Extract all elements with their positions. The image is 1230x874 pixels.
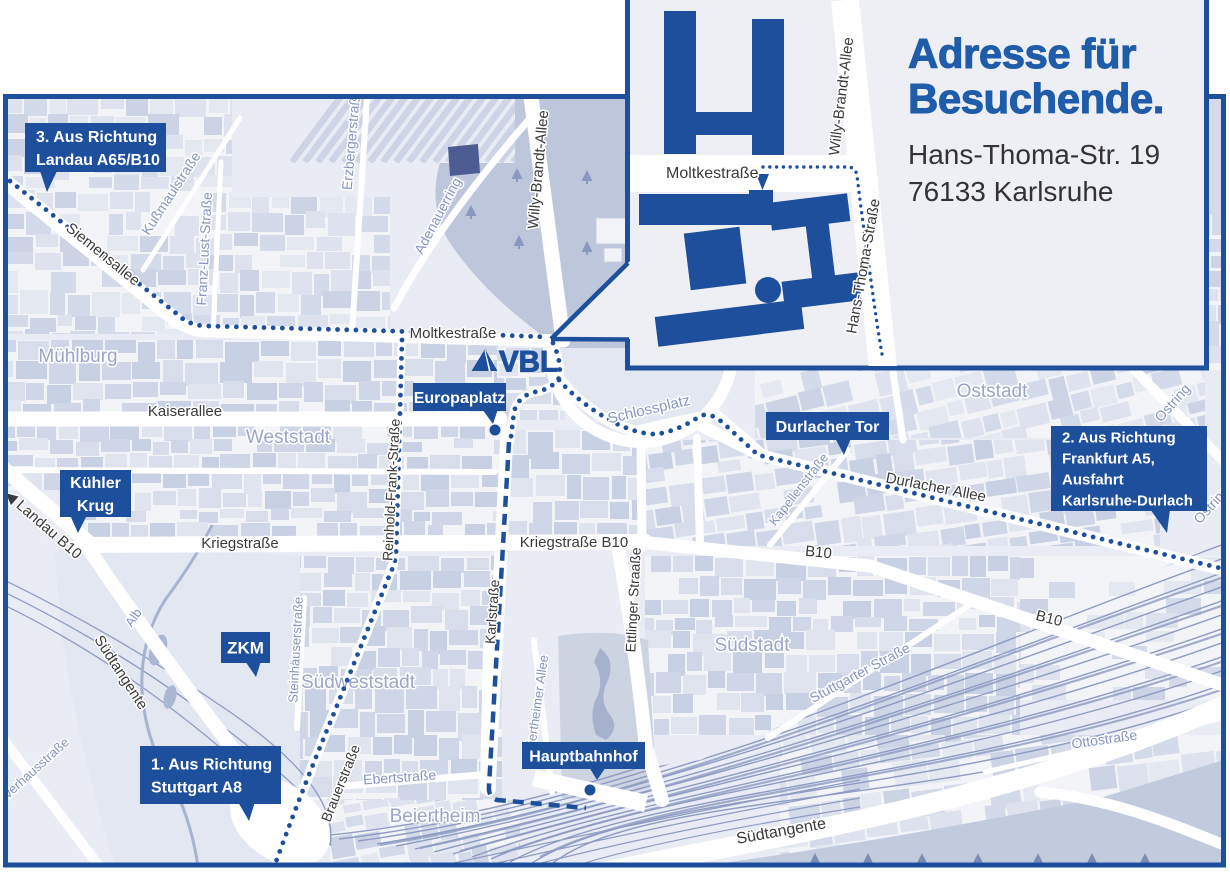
svg-text:1. Aus Richtung: 1. Aus Richtung xyxy=(151,756,272,773)
svg-text:Kaiserallee: Kaiserallee xyxy=(148,403,222,420)
svg-text:Kriegstraße B10: Kriegstraße B10 xyxy=(520,534,628,551)
svg-text:2. Aus Richtung: 2. Aus Richtung xyxy=(1062,429,1176,446)
svg-text:Hans-Thoma-Str. 19: Hans-Thoma-Str. 19 xyxy=(908,139,1160,170)
svg-text:VBL: VBL xyxy=(499,346,558,379)
svg-text:Europaplatz: Europaplatz xyxy=(414,390,506,407)
svg-text:Südstadt: Südstadt xyxy=(715,635,791,656)
svg-text:Weststadt: Weststadt xyxy=(246,427,331,448)
svg-text:Moltkestraße: Moltkestraße xyxy=(410,325,497,342)
svg-text:Karlsruhe-Durlach: Karlsruhe-Durlach xyxy=(1062,492,1193,509)
svg-text:Landau A65/B10: Landau A65/B10 xyxy=(36,152,160,169)
svg-text:Hauptbahnhof: Hauptbahnhof xyxy=(529,748,638,765)
svg-text:Oststadt: Oststadt xyxy=(957,381,1028,402)
svg-text:Südweststadt: Südweststadt xyxy=(301,672,416,693)
svg-text:3. Aus Richtung: 3. Aus Richtung xyxy=(36,129,157,146)
svg-text:B10: B10 xyxy=(804,543,832,563)
svg-text:76133 Karlsruhe: 76133 Karlsruhe xyxy=(908,176,1113,207)
svg-text:ZKM: ZKM xyxy=(227,639,264,658)
svg-text:Kühler: Kühler xyxy=(70,475,121,492)
svg-text:Stuttgart A8: Stuttgart A8 xyxy=(151,779,242,796)
svg-text:Adresse für: Adresse für xyxy=(908,30,1136,77)
svg-text:Kriegstraße: Kriegstraße xyxy=(201,535,279,552)
svg-text:Moltkestraße: Moltkestraße xyxy=(666,165,759,182)
svg-text:Beiertheim: Beiertheim xyxy=(390,806,481,827)
svg-text:Mühlburg: Mühlburg xyxy=(38,346,117,367)
svg-text:Ausfahrt: Ausfahrt xyxy=(1062,471,1124,488)
svg-text:Besuchende.: Besuchende. xyxy=(908,75,1164,122)
svg-text:Frankfurt A5,: Frankfurt A5, xyxy=(1062,450,1155,467)
svg-text:Krug: Krug xyxy=(77,498,114,515)
svg-text:Durlacher Tor: Durlacher Tor xyxy=(776,419,880,436)
